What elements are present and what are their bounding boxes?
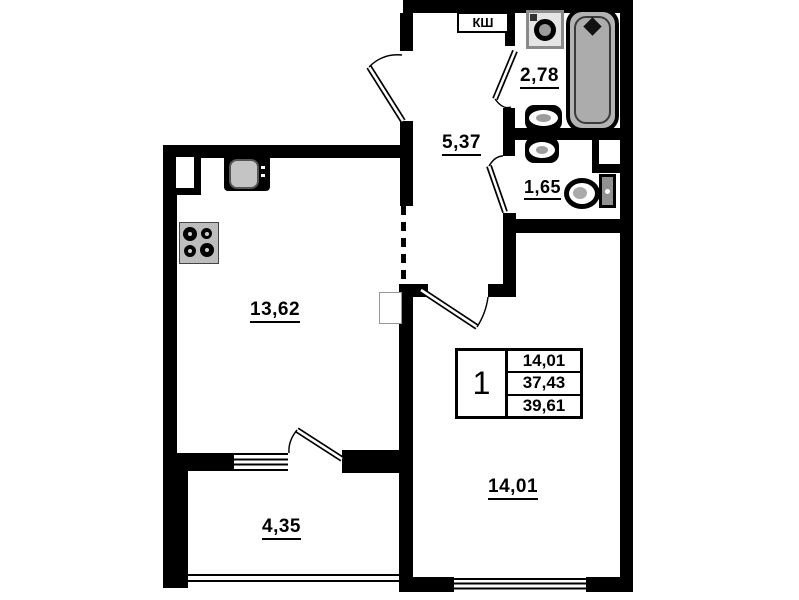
door-entrance (369, 55, 403, 121)
door-toilet (489, 156, 505, 212)
room-area-label-balcony: 4,35 (262, 516, 301, 538)
floor-plan: КШ 1 14,01 37,43 39,61 (0, 0, 799, 600)
room-area-label-toilet: 1,65 (524, 177, 561, 198)
room-area-label-hallway: 5,37 (442, 132, 481, 154)
door-balcony (289, 430, 342, 459)
room-area-label-bathroom: 2,78 (520, 65, 559, 87)
door-bathroom (495, 51, 515, 108)
door-symbols (0, 0, 799, 600)
door-living-room (421, 290, 488, 327)
room-area-label-living-room: 14,01 (488, 476, 538, 498)
room-area-label-kitchen: 13,62 (250, 299, 300, 321)
